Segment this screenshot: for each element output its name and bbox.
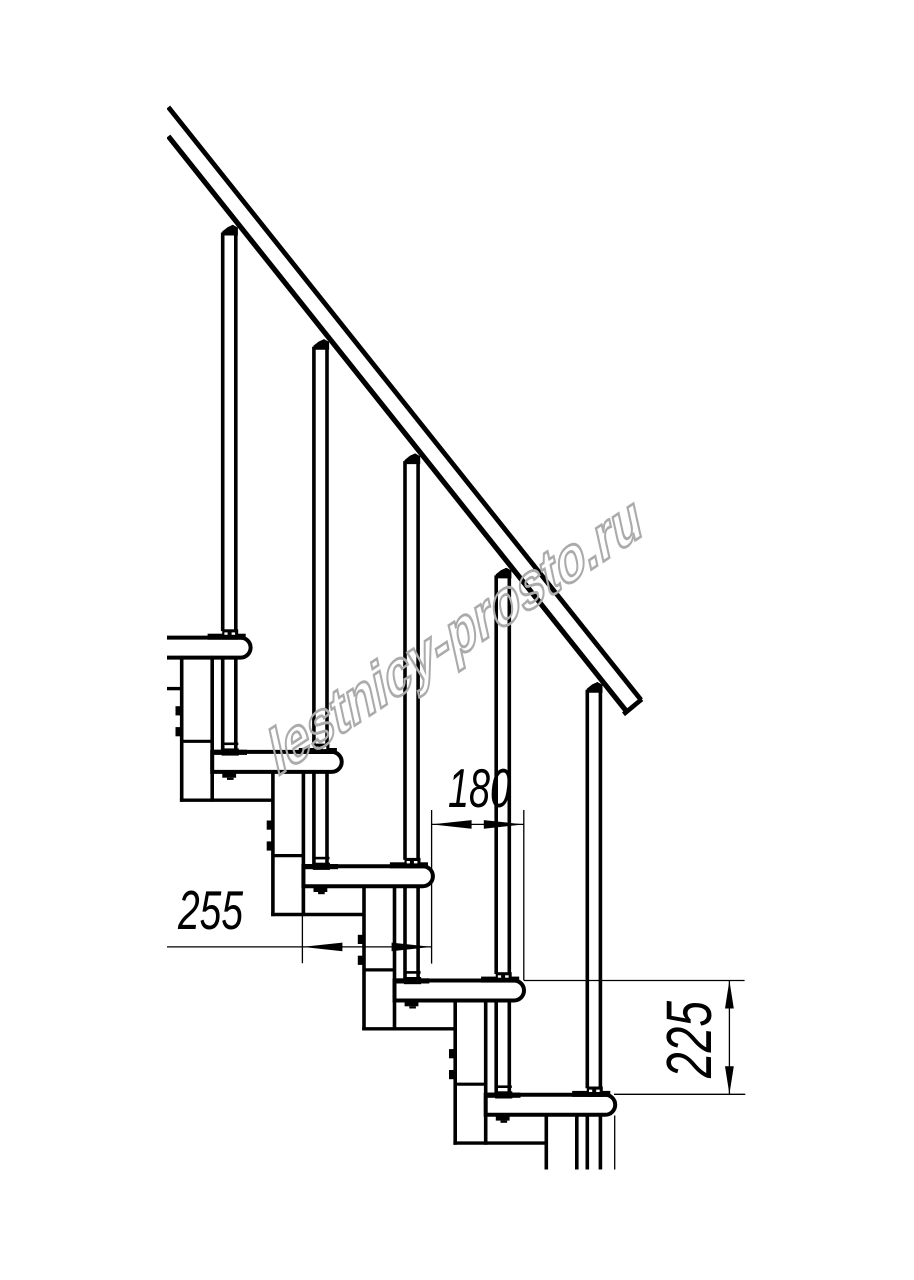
svg-text:225: 225 [653,1001,725,1079]
svg-text:180: 180 [448,757,511,819]
svg-text:255: 255 [177,880,243,941]
